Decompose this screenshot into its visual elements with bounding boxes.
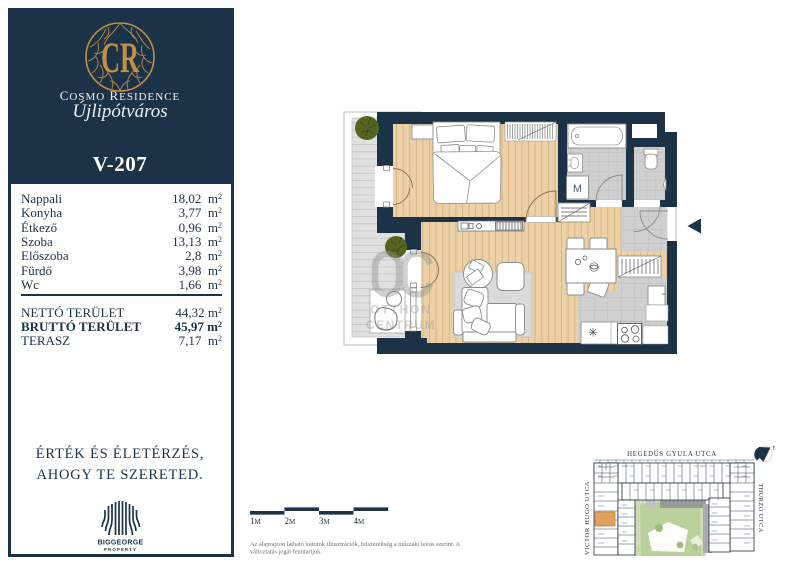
svg-text:VICTOR HUGO UTCA: VICTOR HUGO UTCA [584, 481, 591, 555]
svg-text:1M: 1M [250, 516, 262, 526]
svg-text:2M: 2M [285, 516, 297, 526]
svg-text:THURZÓ UTCA: THURZÓ UTCA [757, 483, 765, 532]
svg-text:É: É [773, 446, 776, 452]
svg-text:Az alaprajzon látható bútorok: Az alaprajzon látható bútorok illusztrác… [250, 541, 461, 548]
svg-text:4M: 4M [354, 516, 366, 526]
svg-text:HEGEDŰS GYULA UTCA: HEGEDŰS GYULA UTCA [627, 450, 717, 458]
svg-text:OTTHON: OTTHON [370, 303, 431, 317]
svg-text:változtatás jogát fenntartjuk.: változtatás jogát fenntartjuk. [250, 549, 322, 556]
svg-text:3M: 3M [319, 516, 331, 526]
svg-text:CENTRUM: CENTRUM [366, 318, 436, 332]
svg-text:M: M [573, 183, 582, 195]
